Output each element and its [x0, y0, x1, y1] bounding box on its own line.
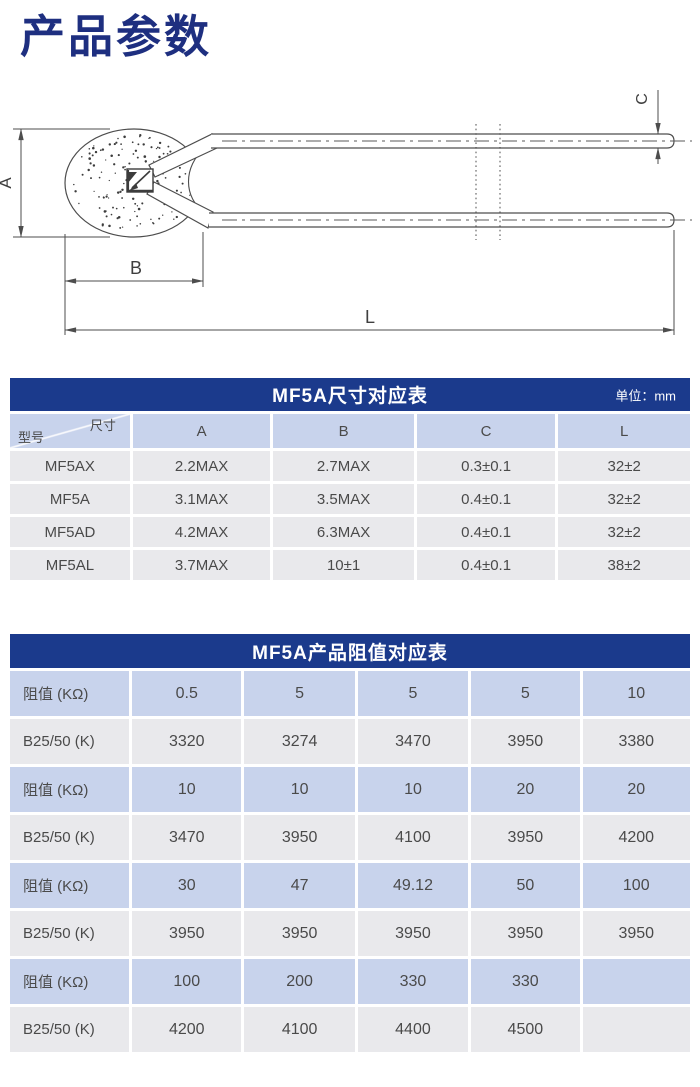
- value-cell: 3950: [471, 911, 579, 956]
- dim-label-c: C: [634, 93, 651, 105]
- value-cell: 330: [358, 959, 468, 1004]
- value-cell: 4200: [132, 1007, 241, 1052]
- corner-header-cell: 尺寸 型号: [10, 414, 130, 448]
- wire-centerlines: [222, 141, 692, 220]
- value-cell: 3950: [244, 911, 354, 956]
- row-label-cell: B25/50 (K): [10, 911, 129, 956]
- dim-label-l: L: [365, 307, 375, 327]
- value-cell: 100: [132, 959, 241, 1004]
- value-cell: 3380: [583, 719, 690, 764]
- value-cell: 3950: [583, 911, 690, 956]
- value-cell: 3950: [471, 719, 579, 764]
- thermistor-chip: [127, 169, 153, 192]
- corner-label-model: 型号: [18, 427, 44, 446]
- value-cell: [583, 959, 690, 1004]
- value-cell: 2.2MAX: [133, 451, 271, 481]
- value-cell: 3.7MAX: [133, 550, 271, 580]
- value-cell: 4.2MAX: [133, 517, 271, 547]
- value-cell: 10: [358, 767, 468, 812]
- corner-label-dimension: 尺寸: [90, 415, 116, 434]
- value-cell: 4200: [583, 815, 690, 860]
- value-cell: 32±2: [558, 484, 690, 514]
- value-cell: 4400: [358, 1007, 468, 1052]
- value-cell: 20: [583, 767, 690, 812]
- resistance-table-grid: 阻值 (KΩ) 0.5 5 5 5 10 B25/50 (K) 3320 327…: [10, 671, 690, 1052]
- value-cell: 6.3MAX: [273, 517, 413, 547]
- value-cell: 0.5: [132, 671, 241, 716]
- value-cell: 5: [244, 671, 354, 716]
- value-cell: 20: [471, 767, 579, 812]
- value-cell: 3.5MAX: [273, 484, 413, 514]
- value-cell: 200: [244, 959, 354, 1004]
- value-cell: 0.4±0.1: [417, 550, 556, 580]
- column-header-b: B: [273, 414, 413, 448]
- model-cell: MF5A: [10, 484, 130, 514]
- value-cell: 10±1: [273, 550, 413, 580]
- value-cell: 32±2: [558, 451, 690, 481]
- resistance-table-header: MF5A产品阻值对应表: [10, 634, 690, 668]
- unit-label: 单位：mm: [615, 385, 676, 404]
- row-label-cell: 阻值 (KΩ): [10, 767, 129, 812]
- value-cell: 0.4±0.1: [417, 517, 556, 547]
- column-header-c: C: [417, 414, 556, 448]
- resistance-table-title: MF5A产品阻值对应表: [252, 638, 448, 665]
- value-cell: 3470: [358, 719, 468, 764]
- value-cell: 10: [244, 767, 354, 812]
- resistance-table: MF5A产品阻值对应表 阻值 (KΩ) 0.5 5 5 5 10 B25/50 …: [10, 634, 690, 1052]
- value-cell: 3950: [358, 911, 468, 956]
- model-cell: MF5AX: [10, 451, 130, 481]
- dim-label-a: A: [0, 177, 15, 189]
- value-cell: 3950: [132, 911, 241, 956]
- dimension-table-grid: 尺寸 型号 A B C L MF5AX 2.2MAX 2.7MAX 0.3±0.…: [10, 414, 690, 580]
- row-label-cell: B25/50 (K): [10, 719, 129, 764]
- value-cell: 32±2: [558, 517, 690, 547]
- value-cell: 10: [583, 671, 690, 716]
- value-cell: 3470: [132, 815, 241, 860]
- dimension-table-header: MF5A尺寸对应表 单位：mm: [10, 378, 690, 411]
- value-cell: 49.12: [358, 863, 468, 908]
- model-cell: MF5AL: [10, 550, 130, 580]
- value-cell: 50: [471, 863, 579, 908]
- column-header-l: L: [558, 414, 690, 448]
- value-cell: 2.7MAX: [273, 451, 413, 481]
- dimension-table: MF5A尺寸对应表 单位：mm 尺寸 型号 A B C L MF5AX 2.2M…: [10, 378, 690, 580]
- value-cell: 3.1MAX: [133, 484, 271, 514]
- value-cell: 4100: [358, 815, 468, 860]
- value-cell: 4100: [244, 1007, 354, 1052]
- value-cell: [583, 1007, 690, 1052]
- value-cell: 3950: [244, 815, 354, 860]
- value-cell: 4500: [471, 1007, 579, 1052]
- column-header-a: A: [133, 414, 271, 448]
- value-cell: 47: [244, 863, 354, 908]
- row-label-cell: B25/50 (K): [10, 815, 129, 860]
- value-cell: 38±2: [558, 550, 690, 580]
- value-cell: 0.3±0.1: [417, 451, 556, 481]
- page-title: 产品参数: [20, 10, 700, 64]
- value-cell: 10: [132, 767, 241, 812]
- model-cell: MF5AD: [10, 517, 130, 547]
- lead-wires: [147, 134, 674, 228]
- value-cell: 30: [132, 863, 241, 908]
- value-cell: 0.4±0.1: [417, 484, 556, 514]
- row-label-cell: 阻值 (KΩ): [10, 959, 129, 1004]
- thermistor-dimension-diagram: A B L C: [0, 82, 700, 342]
- value-cell: 5: [471, 671, 579, 716]
- value-cell: 5: [358, 671, 468, 716]
- value-cell: 330: [471, 959, 579, 1004]
- value-cell: 3274: [244, 719, 354, 764]
- row-label-cell: 阻值 (KΩ): [10, 863, 129, 908]
- product-parameters-page: 产品参数: [0, 10, 700, 1087]
- row-label-cell: B25/50 (K): [10, 1007, 129, 1052]
- value-cell: 3320: [132, 719, 241, 764]
- dim-label-b: B: [130, 258, 142, 278]
- dimension-table-title: MF5A尺寸对应表: [272, 381, 428, 408]
- row-label-cell: 阻值 (KΩ): [10, 671, 129, 716]
- value-cell: 100: [583, 863, 690, 908]
- value-cell: 3950: [471, 815, 579, 860]
